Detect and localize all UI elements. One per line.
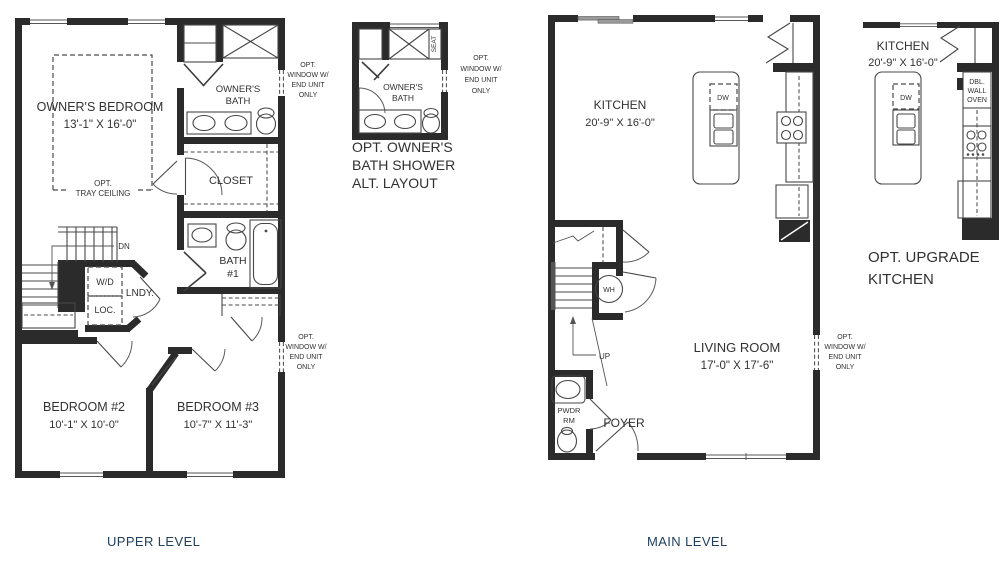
dn-label: DN	[118, 242, 130, 251]
svg-text:OPT.: OPT.	[300, 62, 316, 69]
upper-level-plan: OWNER'S BEDROOM 13'-1" X 16'-0" OPT. TRA…	[15, 18, 329, 478]
main-level-plan: KITCHEN 20'-9" X 16'-0" DW LIVING ROOM 1…	[548, 15, 866, 460]
svg-text:OVEN: OVEN	[967, 97, 987, 104]
upgrade-counter	[958, 108, 991, 218]
laundry-label: LNDY.	[126, 288, 154, 299]
alt-bath-plan: OWNER'S BATH SEAT OPT. WINDOW W/ END UNI…	[352, 22, 502, 191]
main-opt-window-note: OPT. WINDOW W/ END UNIT ONLY	[824, 334, 865, 371]
floorplan-page: OWNER'S BEDROOM 13'-1" X 16'-0" OPT. TRA…	[0, 0, 1000, 567]
dw-label: DW	[717, 95, 729, 102]
alt-owners-bath-line2: BATH	[392, 93, 414, 103]
main-bottom-window	[706, 453, 786, 460]
svg-text:WINDOW W/: WINDOW W/	[824, 344, 865, 351]
tray-ceiling-line1: OPT.	[94, 179, 112, 188]
svg-text:ONLY: ONLY	[472, 88, 491, 95]
main-opt-window	[813, 335, 820, 370]
upper-opt-window-note-top: OPT. WINDOW W/ END UNIT ONLY	[287, 62, 328, 99]
pantry-corner	[766, 23, 820, 72]
svg-text:OPT.: OPT.	[473, 55, 489, 62]
owners-bath-door	[184, 64, 223, 86]
bedroom2-dims: 10'-1" X 10'-0"	[49, 419, 119, 431]
floor-plan-canvas: OWNER'S BEDROOM 13'-1" X 16'-0" OPT. TRA…	[0, 0, 1000, 567]
living-room-dims: 17'-0" X 17'-6"	[701, 360, 774, 372]
alt-owners-bath-line1: OWNER'S	[383, 82, 423, 92]
bedroom3-closet	[222, 294, 280, 341]
powder-room-line1: PWDR	[558, 406, 581, 415]
wh-label: WH	[603, 287, 615, 294]
wd-label: W/D	[96, 277, 114, 287]
owners-bedroom-label: OWNER'S BEDROOM	[37, 100, 164, 114]
closet-label: CLOSET	[209, 175, 253, 187]
svg-text:END UNIT: END UNIT	[828, 354, 862, 361]
svg-text:END UNIT: END UNIT	[289, 354, 323, 361]
main-level-caption: MAIN LEVEL	[647, 534, 728, 549]
tray-ceiling-line2: TRAY CEILING	[76, 189, 131, 198]
svg-text:OPT.: OPT.	[298, 334, 314, 341]
upgrade-caption-line2: KITCHEN	[868, 271, 934, 288]
upgrade-pantry-corner	[940, 26, 975, 63]
loc-label: LOC.	[94, 305, 115, 315]
bath1-line2: #1	[227, 268, 239, 280]
linen-closet	[184, 25, 216, 62]
seat-label: SEAT	[431, 36, 438, 53]
bath1-line1: BATH	[219, 255, 246, 267]
upper-opt-window-note-bottom: OPT. WINDOW W/ END UNIT ONLY	[285, 334, 326, 371]
owners-bath-line1: OWNER'S	[216, 84, 261, 95]
svg-text:WALL: WALL	[968, 88, 987, 95]
svg-text:OPT.: OPT.	[837, 334, 853, 341]
alt-bath-caption-line3: ALT. LAYOUT	[352, 175, 438, 191]
powder-room-line2: RM	[563, 416, 575, 425]
upper-level-caption: UPPER LEVEL	[107, 534, 200, 549]
refrigerator-icon	[776, 185, 808, 218]
bedroom2-door	[97, 341, 132, 367]
upgrade-dw-label: DW	[900, 95, 912, 102]
bedroom2-label: BEDROOM #2	[43, 400, 125, 414]
alt-bath-caption-line1: OPT. OWNER'S	[352, 139, 453, 155]
owners-bath-line2: BATH	[226, 96, 251, 107]
shower	[223, 25, 278, 58]
sliding-door	[578, 17, 633, 24]
main-closet	[603, 227, 649, 262]
alt-bath-caption-line2: BATH SHOWER	[352, 157, 455, 173]
up-label: UP	[599, 352, 610, 361]
fireplace-block	[779, 220, 810, 242]
living-room-label: LIVING ROOM	[694, 340, 781, 355]
bedroom3-dims: 10'-7" X 11'-3"	[184, 419, 253, 431]
svg-text:ONLY: ONLY	[299, 92, 318, 99]
alt-opt-window-note: OPT. WINDOW W/ END UNIT ONLY	[460, 55, 501, 95]
svg-text:END UNIT: END UNIT	[464, 77, 498, 84]
upgrade-island	[875, 72, 921, 184]
svg-text:ONLY: ONLY	[297, 364, 316, 371]
upgrade-kitchen-plan: KITCHEN 20'-9" X 16'-0" DW DBL. WALL OVE…	[863, 22, 999, 288]
svg-text:END UNIT: END UNIT	[291, 82, 325, 89]
stove-icon	[777, 112, 806, 143]
alt-bath-vanity	[359, 110, 421, 133]
svg-text:DBL.: DBL.	[969, 79, 985, 86]
svg-text:WINDOW W/: WINDOW W/	[460, 66, 501, 73]
owners-bath-vanity	[187, 112, 251, 134]
upgrade-kitchen-dims: 20'-9" X 16'-0"	[868, 57, 938, 69]
kitchen-label: KITCHEN	[594, 98, 647, 112]
upgrade-caption-line1: OPT. UPGRADE	[868, 249, 980, 266]
svg-text:WINDOW W/: WINDOW W/	[287, 72, 328, 79]
owners-bedroom-dims: 13'-1" X 16'-0"	[64, 119, 137, 131]
kitchen-island	[693, 72, 739, 184]
owners-bath-toilet-icon	[257, 108, 276, 134]
main-top-window	[715, 15, 748, 22]
alt-bath-toilet-icon	[423, 109, 440, 134]
svg-text:WINDOW W/: WINDOW W/	[285, 344, 326, 351]
foyer-label: FOYER	[603, 416, 645, 430]
upgrade-kitchen-label: KITCHEN	[877, 39, 930, 53]
svg-text:ONLY: ONLY	[836, 364, 855, 371]
kitchen-dims: 20'-9" X 16'-0"	[585, 117, 655, 129]
bedroom3-label: BEDROOM #3	[177, 400, 259, 414]
dbl-wall-oven-label: DBL. WALL OVEN	[967, 79, 987, 104]
